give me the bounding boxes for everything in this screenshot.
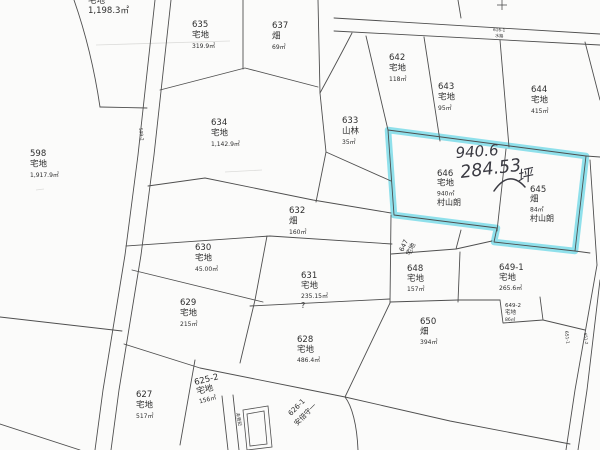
parcel-label-633-line0: 633 <box>342 116 358 126</box>
parcel-label-633-line2: 35㎡ <box>342 138 356 146</box>
parcel-label-598-line0: 598 <box>30 149 46 159</box>
parcel-label-644-line1: 宅地 <box>531 95 549 106</box>
parcel-label-627-line0: 627 <box>136 390 152 400</box>
parcel-label-627-line2: 517㎡ <box>136 412 153 420</box>
parcel-label-633-line1: 山林 <box>342 126 360 137</box>
parcel-label-645-line3: 村山朗 <box>530 213 554 223</box>
parcel-label-649-1-line2: 265.6㎡ <box>499 284 522 292</box>
parcel-label-644-line2: 415㎡ <box>531 107 548 115</box>
parcel-label-629-line2: 215㎡ <box>180 320 197 328</box>
parcel-label-650-line2: 394㎡ <box>420 338 437 346</box>
parcel-label-topleft-line1: 1,198.3㎡ <box>88 6 129 16</box>
strip-label-1: 616-1 <box>493 27 506 33</box>
parcel-label-628-line1: 宅地 <box>297 344 315 355</box>
parcel-label-632-line1: 畑 <box>289 217 298 227</box>
parcel-label-649-2-line2: 86㎡ <box>505 316 516 323</box>
parcel-label-650-line1: 畑 <box>420 327 429 337</box>
parcel-label-643-line2: 95㎡ <box>438 104 452 112</box>
cadastral-map: 宅地1,198.3㎡598宅地1,917.9㎡635宅地319.9㎡637畑69… <box>0 0 600 450</box>
parcel-label-642-line2: 118㎡ <box>389 75 406 83</box>
map-canvas[interactable]: 宅地1,198.3㎡598宅地1,917.9㎡635宅地319.9㎡637畑69… <box>0 0 600 450</box>
parcel-label-637-line2: 69㎡ <box>272 43 286 51</box>
parcel-label-634-line0: 634 <box>211 118 227 128</box>
parcel-label-646-line1: 宅地 <box>437 178 455 189</box>
parcel-label-635-line0: 635 <box>192 20 208 30</box>
parcel-label-631-line3: ? <box>301 301 305 310</box>
parcel-label-642-line0: 642 <box>389 53 405 63</box>
parcel-label-644-line0: 644 <box>531 85 547 95</box>
parcel-label-645-line0: 645 <box>530 185 546 195</box>
map-background <box>0 0 600 450</box>
parcel-label-629-line0: 629 <box>180 298 196 308</box>
parcel-label-645-line1: 畑 <box>530 195 539 205</box>
parcel-label-631-line0: 631 <box>301 271 317 281</box>
parcel-label-598-line1: 宅地 <box>30 159 48 170</box>
parcel-label-628-line0: 628 <box>297 335 313 345</box>
parcel-label-632-line2: 160㎡ <box>289 228 306 236</box>
parcel-label-637-line0: 637 <box>272 21 288 31</box>
parcel-label-629-line1: 宅地 <box>180 308 198 319</box>
parcel-label-648-line2: 157㎡ <box>407 285 424 293</box>
parcel-label-648-line1: 宅地 <box>407 273 425 284</box>
parcel-label-628-line2: 486.4㎡ <box>297 356 320 364</box>
parcel-label-646-line0: 646 <box>437 169 453 179</box>
parcel-label-630-line0: 630 <box>195 243 211 253</box>
parcel-label-598-line2: 1,917.9㎡ <box>30 171 59 179</box>
parcel-label-635-line1: 宅地 <box>192 30 210 41</box>
parcel-label-635-line2: 319.9㎡ <box>192 42 215 50</box>
parcel-label-634-line1: 宅地 <box>211 128 229 139</box>
parcel-label-650-line0: 650 <box>420 317 436 327</box>
parcel-label-637-line1: 畑 <box>272 32 281 42</box>
parcel-label-646-line3: 村山朗 <box>437 197 461 207</box>
parcel-label-631-line1: 宅地 <box>301 280 319 291</box>
parcel-label-643-line1: 宅地 <box>438 92 456 103</box>
parcel-label-645-line2: 84㎡ <box>530 205 544 213</box>
parcel-label-649-1-line0: 649-1 <box>499 263 524 273</box>
parcel-label-648-line0: 648 <box>407 264 423 274</box>
parcel-label-631-line2: 235.15㎡ <box>301 292 328 300</box>
parcel-label-630-line1: 宅地 <box>195 253 213 264</box>
parcel-label-649-2-line0: 649-2 <box>505 303 521 309</box>
parcel-label-649-2-line1: 宅地 <box>505 308 517 316</box>
parcel-label-630-line2: 45.00㎡ <box>195 265 218 273</box>
parcel-label-649-1-line1: 宅地 <box>499 272 517 283</box>
parcel-label-643-line0: 643 <box>438 82 454 92</box>
parcel-label-642-line1: 宅地 <box>389 63 407 74</box>
parcel-label-646-line2: 940㎡ <box>437 189 454 197</box>
parcel-label-634-line2: 1,142.9㎡ <box>211 140 240 148</box>
parcel-label-627-line1: 宅地 <box>136 400 154 411</box>
parcel-label-632-line0: 632 <box>289 206 305 216</box>
